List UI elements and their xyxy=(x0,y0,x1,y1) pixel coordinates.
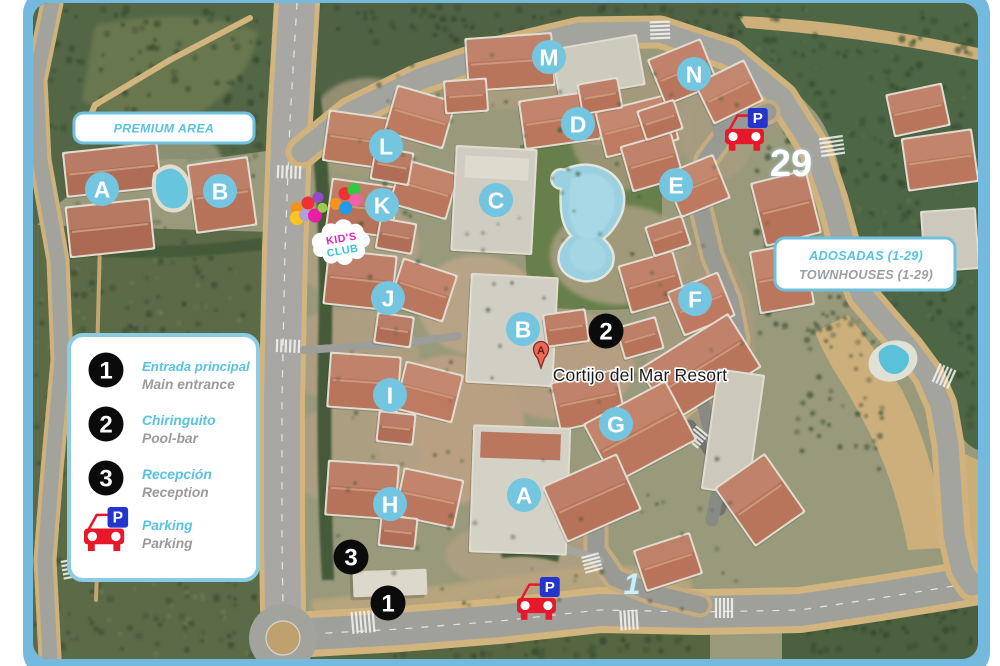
svg-text:1: 1 xyxy=(99,357,112,384)
svg-text:K: K xyxy=(374,192,391,218)
svg-text:D: D xyxy=(570,111,587,137)
svg-text:Recepción: Recepción xyxy=(142,467,212,482)
svg-text:M: M xyxy=(539,44,558,70)
svg-text:3: 3 xyxy=(99,465,112,492)
svg-text:Pool-bar: Pool-bar xyxy=(142,431,199,446)
svg-text:P: P xyxy=(753,110,763,127)
svg-text:P: P xyxy=(113,510,123,527)
svg-text:1: 1 xyxy=(624,568,641,601)
svg-text:Main entrance: Main entrance xyxy=(142,377,235,392)
svg-text:1: 1 xyxy=(381,590,394,617)
svg-text:H: H xyxy=(382,491,399,517)
svg-text:2: 2 xyxy=(99,411,112,438)
svg-text:Entrada principal: Entrada principal xyxy=(142,359,250,374)
svg-text:PREMIUM AREA: PREMIUM AREA xyxy=(114,122,215,136)
svg-text:Reception: Reception xyxy=(142,485,209,500)
svg-text:B: B xyxy=(515,316,532,342)
svg-text:2: 2 xyxy=(599,318,612,345)
svg-text:Parking: Parking xyxy=(142,536,193,551)
svg-text:TOWNHOUSES (1-29): TOWNHOUSES (1-29) xyxy=(799,267,933,282)
svg-text:Cortijo del Mar Resort: Cortijo del Mar Resort xyxy=(553,365,728,385)
svg-text:A: A xyxy=(537,345,545,357)
svg-text:L: L xyxy=(379,133,393,159)
svg-text:Parking: Parking xyxy=(142,518,193,533)
svg-text:A: A xyxy=(516,482,533,508)
svg-text:C: C xyxy=(488,187,505,213)
svg-text:F: F xyxy=(688,286,702,312)
svg-text:Chiringuito: Chiringuito xyxy=(142,413,216,428)
svg-text:N: N xyxy=(686,61,703,87)
svg-text:ADOSADAS (1-29): ADOSADAS (1-29) xyxy=(808,248,923,263)
svg-text:G: G xyxy=(607,411,625,437)
svg-text:E: E xyxy=(668,172,683,198)
svg-text:J: J xyxy=(382,285,395,311)
svg-text:B: B xyxy=(212,178,229,204)
svg-text:I: I xyxy=(387,382,393,408)
svg-text:P: P xyxy=(545,579,555,596)
svg-text:3: 3 xyxy=(344,544,357,571)
svg-text:A: A xyxy=(94,176,111,202)
svg-text:29: 29 xyxy=(770,143,812,185)
